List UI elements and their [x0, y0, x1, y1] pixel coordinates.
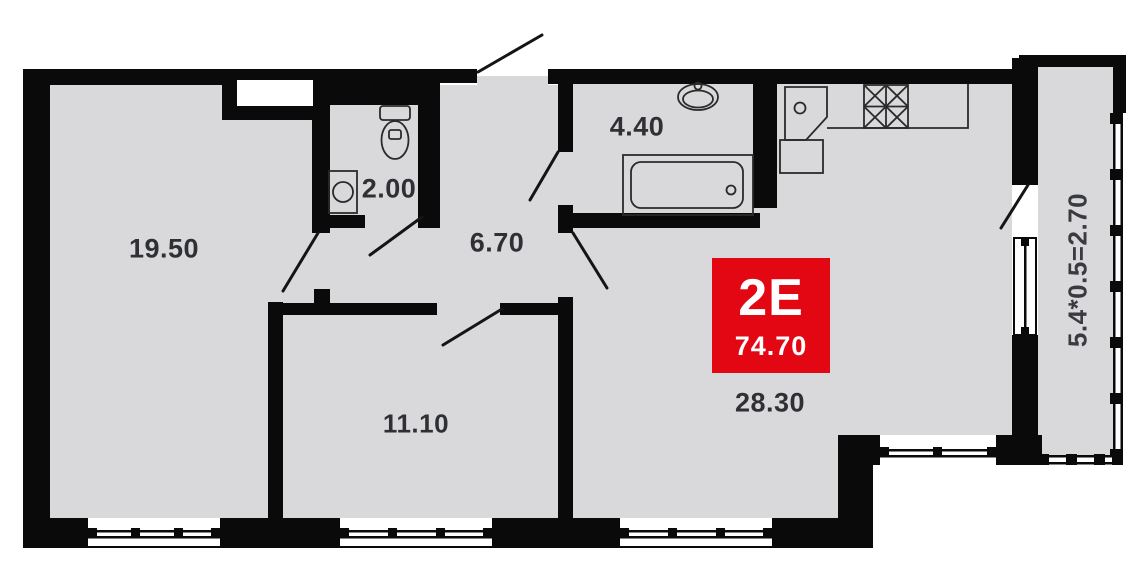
window-balcony-inner: [1014, 238, 1036, 335]
wall-outer-top-left: [23, 69, 228, 85]
unit-total-area: 74.70: [735, 333, 808, 360]
door-entrance: [478, 35, 542, 72]
wall-outer-left: [23, 69, 50, 548]
floor-left-wing: [50, 85, 573, 518]
room-area-label-11-10: 11.10: [383, 409, 449, 440]
wall-balcony-sep-lower: [1012, 335, 1038, 437]
vent-shaft-icon: [864, 85, 908, 128]
room-area-label-28-30: 28.30: [735, 388, 805, 419]
wall-room1-right: [312, 84, 330, 233]
wall-room2-left: [268, 302, 283, 518]
wall-niche: [237, 80, 313, 106]
window-room2: [340, 518, 492, 546]
floor-kitchen: [838, 84, 1012, 435]
wall-balcony-sep-upper: [1012, 58, 1038, 185]
room-area-label-6-70: 6.70: [470, 228, 525, 259]
wall-room1-door-jamb: [314, 289, 330, 305]
room-area-label-2-00: 2.00: [362, 174, 417, 205]
room-area-label-4-40: 4.40: [610, 112, 665, 143]
wall-bath-left: [558, 84, 573, 152]
window-living: [620, 518, 772, 546]
wall-window4-jamb-left: [838, 435, 880, 465]
window-kitchen: [880, 437, 996, 465]
wall-wc-door-jamb: [420, 213, 437, 228]
unit-type-label: 2E: [738, 272, 804, 324]
wall-room2-top: [268, 303, 437, 315]
floor-plan: 19.50 2.00 6.70 4.40 11.10 28.30 5.4*0.5…: [0, 0, 1147, 580]
balcony-formula-label: 5.4*0.5=2.70: [1063, 193, 1094, 347]
wall-wc-right: [418, 69, 440, 228]
floor-plan-drawing: [0, 0, 1147, 580]
wall-bath-right: [753, 69, 777, 208]
wall-hall-living-sep: [558, 297, 573, 518]
unit-badge[interactable]: 2E 74.70: [712, 258, 830, 373]
wall-above-wc: [330, 69, 430, 105]
wall-balcony-top-right: [1113, 55, 1126, 113]
floor-entrance: [477, 76, 548, 88]
wall-balcony-sep-bottom: [998, 437, 1038, 465]
wall-outer-top-right: [548, 69, 1019, 84]
room-area-label-19-50: 19.50: [129, 234, 199, 265]
window-room1: [88, 518, 220, 546]
wall-room2-top-stub: [500, 303, 558, 315]
